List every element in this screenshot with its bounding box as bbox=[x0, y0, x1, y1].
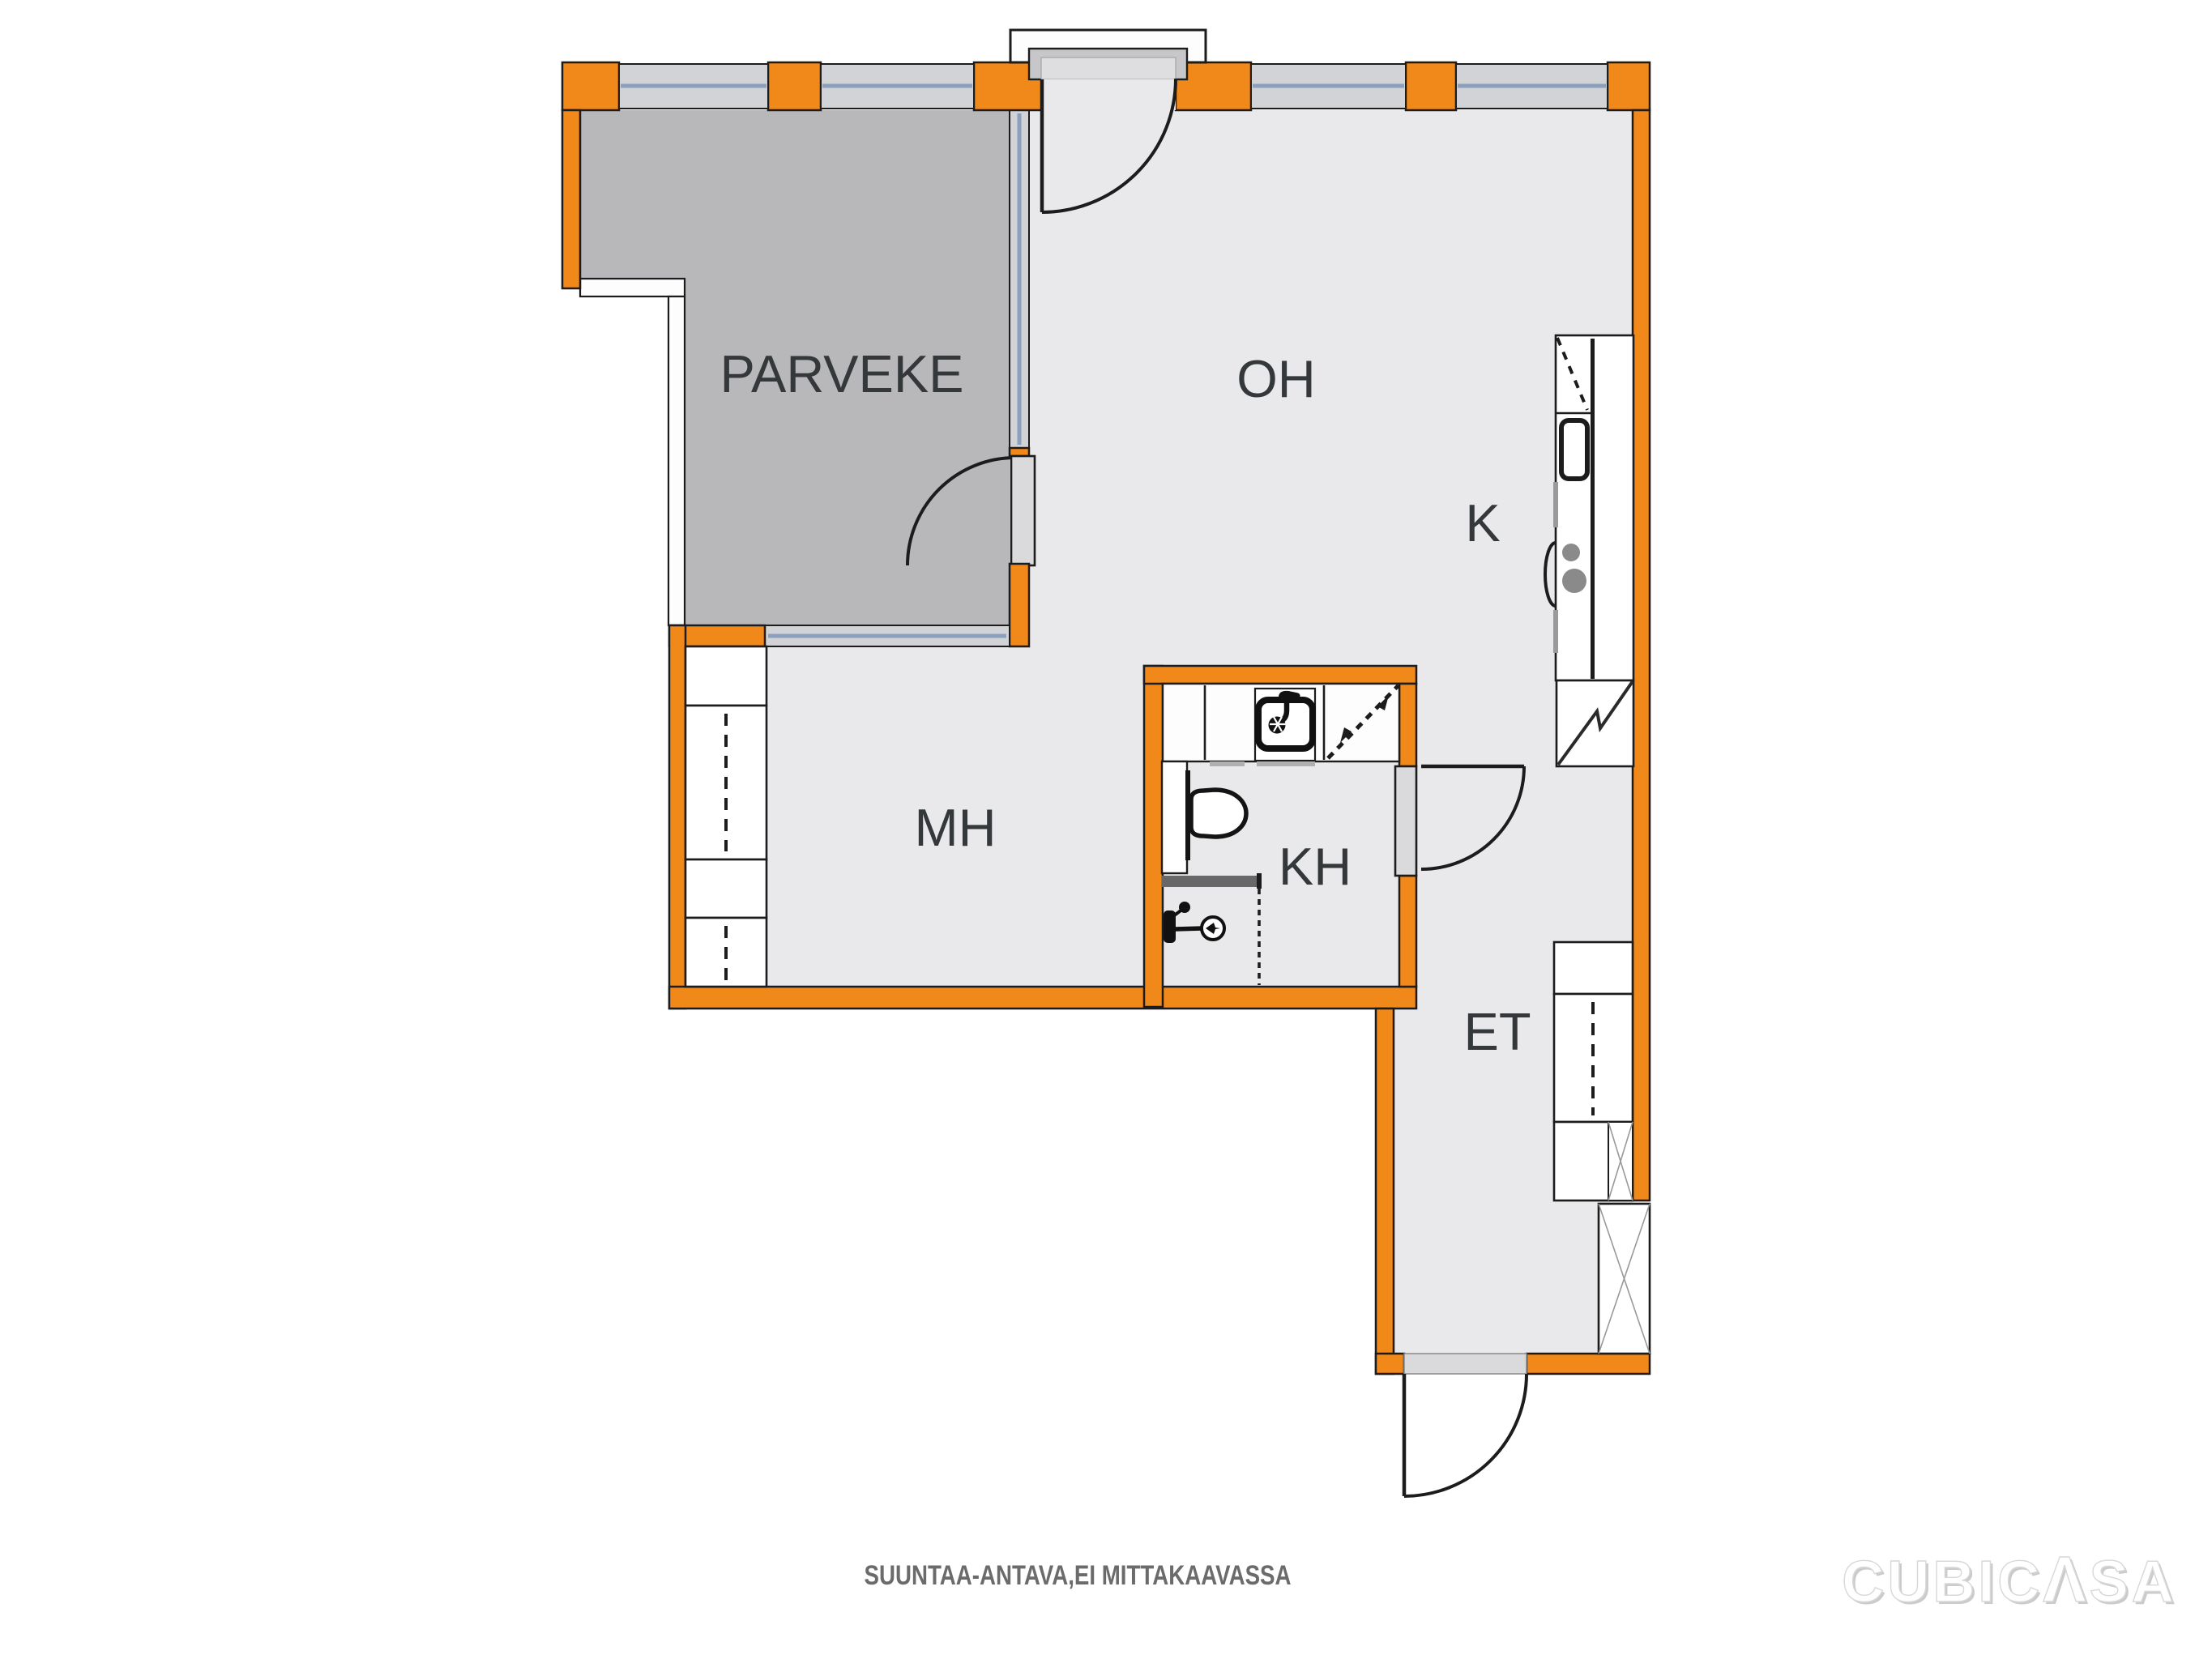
svg-text:MH: MH bbox=[914, 798, 996, 857]
svg-text:SUUNTAA-ANTAVA,EI MITTAKAAVASS: SUUNTAA-ANTAVA,EI MITTAKAAVASSA bbox=[865, 1560, 1292, 1591]
svg-text:ET: ET bbox=[1463, 1002, 1531, 1061]
svg-text:CUBICΛSA: CUBICΛSA bbox=[1842, 1543, 2176, 1615]
svg-text:K: K bbox=[1465, 493, 1500, 552]
svg-text:OH: OH bbox=[1236, 349, 1316, 408]
svg-text:KH: KH bbox=[1279, 837, 1352, 896]
svg-text:PARVEKE: PARVEKE bbox=[720, 344, 963, 403]
